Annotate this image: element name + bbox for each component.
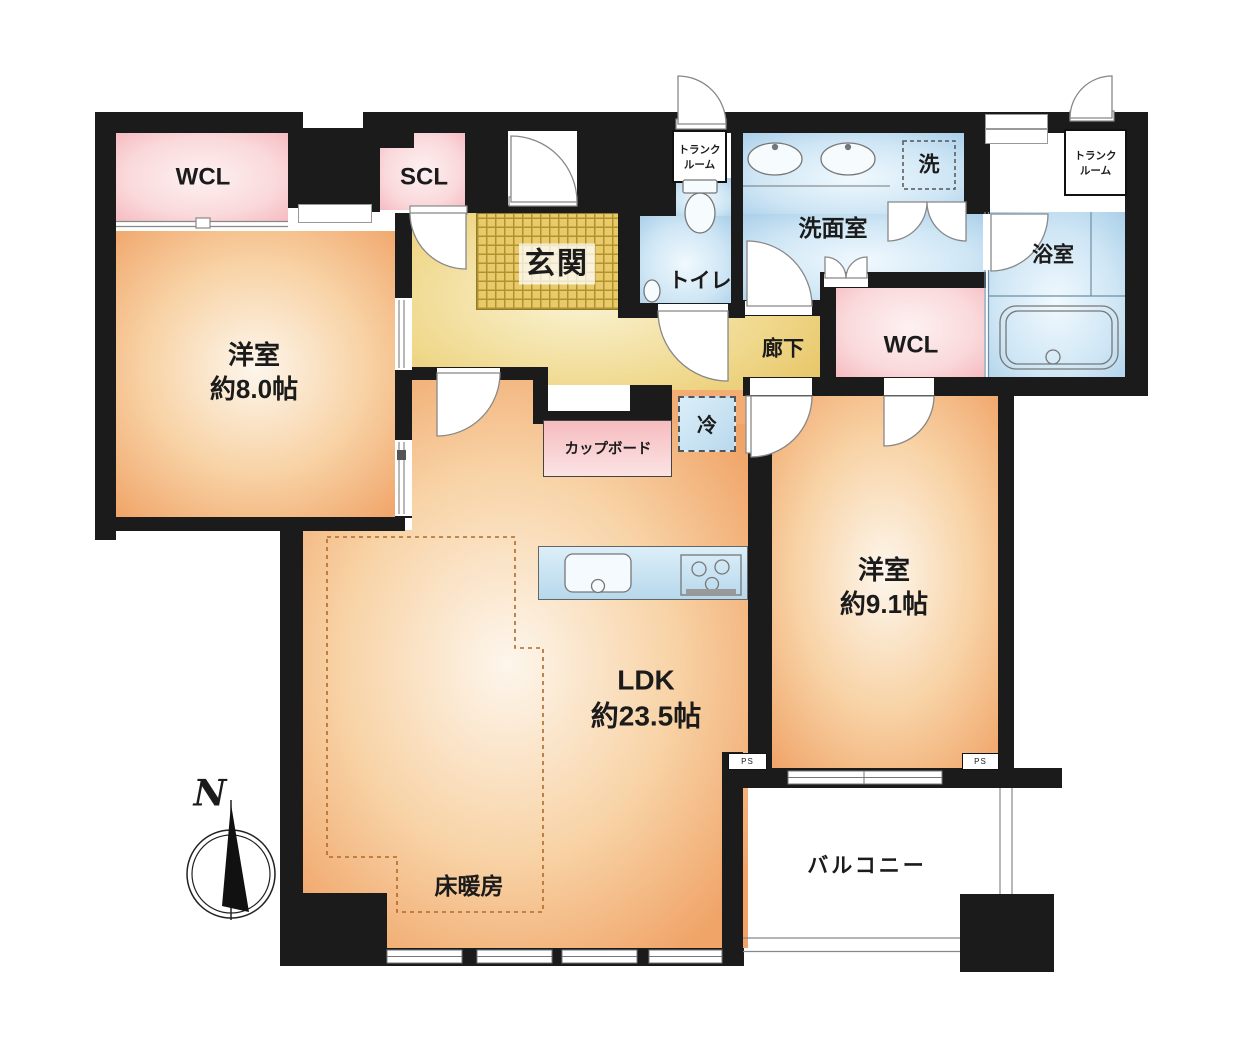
- label-genkan: 玄関: [519, 244, 595, 285]
- label-fridge: 冷: [697, 413, 717, 439]
- ps-right: PS: [962, 753, 999, 770]
- wall-wcl-right-left: [820, 280, 836, 396]
- trunk-room-top: トランク ルーム: [672, 130, 727, 183]
- top-wall-notch: [303, 112, 363, 128]
- trunk-room-right: トランク ルーム: [1064, 129, 1127, 196]
- wall-left: [95, 112, 116, 540]
- bath-top-recess-a: [985, 114, 1048, 129]
- label-bathroom: 浴室: [1032, 241, 1074, 268]
- floor-plan: トランク ルーム トランク ルーム PS PS: [0, 0, 1245, 1060]
- room-wcl-right: [836, 277, 984, 377]
- entrance-alcove: [508, 131, 577, 205]
- wall-block-c: [630, 385, 672, 424]
- label-hallway: 廊下: [762, 335, 804, 362]
- toilet-door-gap: [658, 304, 728, 317]
- label-bedroom-left-size: 約8.0帖: [210, 373, 298, 407]
- room-toilet-nook: [673, 178, 731, 216]
- trunk-room-top-label2: ルーム: [684, 159, 715, 171]
- room-bedroom-right-doorway: [748, 396, 774, 456]
- nw-closet-opening: [298, 204, 372, 223]
- label-bedroom-right-size: 約9.1帖: [840, 588, 928, 622]
- wall-bedroom-right-side: [998, 390, 1014, 788]
- balcony-corner-block: [960, 894, 1054, 972]
- label-balcony: バルコニー: [807, 852, 927, 879]
- label-cupboard: カップボード: [565, 441, 652, 460]
- trunk-room-right-label2: ルーム: [1080, 165, 1111, 177]
- label-bedroom-left-name: 洋室: [210, 339, 298, 373]
- label-washroom: 洗面室: [799, 214, 868, 244]
- label-washer: 洗: [919, 151, 940, 178]
- slide-gap-upper: [395, 298, 412, 370]
- label-bedroom-right: 洋室 約9.1帖: [840, 554, 928, 622]
- slide-gap-lower: [395, 440, 412, 516]
- ps-left-label: PS: [741, 757, 754, 766]
- compass-n-label: N: [194, 771, 227, 818]
- door-gap-wcl-bedroom-right: [884, 378, 934, 395]
- wall-nw-mass: [288, 130, 368, 208]
- wall-step-block: [303, 893, 387, 954]
- bifold-gap: [824, 274, 868, 287]
- label-bedroom-left: 洋室 約8.0帖: [210, 339, 298, 407]
- compass-icon: [187, 800, 275, 920]
- label-toilet: トイレ: [669, 267, 732, 294]
- wall-ldk-bottom: [280, 948, 744, 966]
- washroom-door-gap: [745, 301, 812, 315]
- wall-ldk-bedroom-right: [748, 453, 772, 768]
- bath-top-recess-b: [985, 129, 1048, 144]
- trunk-room-right-label1: トランク: [1075, 150, 1117, 162]
- wall-bedroom-left-bottom: [95, 517, 405, 531]
- label-ldk: LDK 約23.5帖: [591, 663, 702, 736]
- ps-right-label: PS: [974, 757, 987, 766]
- wall-scl-left: [366, 130, 380, 212]
- kitchen-counter: [538, 546, 748, 600]
- label-ldk-size: 約23.5帖: [591, 699, 702, 735]
- label-wcl-right: WCL: [884, 329, 939, 360]
- ldk-door-gap: [437, 368, 500, 379]
- wall-toilet-divider: [731, 130, 743, 318]
- wall-outer-right: [1125, 112, 1148, 394]
- ps-left: PS: [728, 753, 767, 770]
- wall-scl-notch: [380, 130, 414, 148]
- label-wcl-left: WCL: [176, 161, 231, 192]
- trunk-room-top-label1: トランク: [679, 144, 721, 156]
- label-floor-heating: 床暖房: [435, 872, 504, 902]
- label-ldk-name: LDK: [591, 663, 702, 699]
- door-gap-hall-bedroom-right: [750, 378, 812, 395]
- label-scl: SCL: [400, 161, 448, 192]
- room-bathroom: [988, 212, 1125, 378]
- label-bedroom-right-name: 洋室: [840, 554, 928, 588]
- wall-ldk-left: [280, 517, 303, 962]
